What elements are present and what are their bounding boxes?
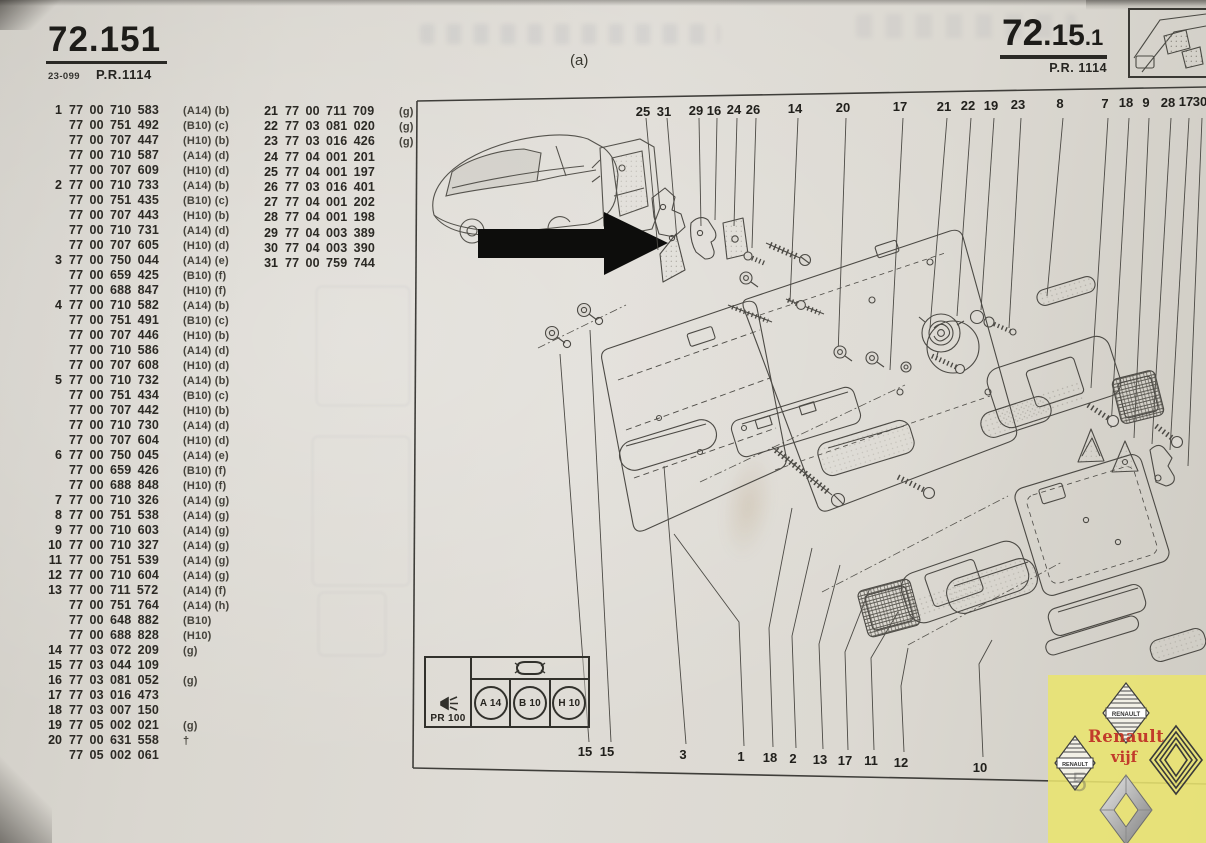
part-number: 77 00 751 492: [69, 118, 179, 132]
pr-code: PR 100: [430, 713, 465, 724]
parts-list-column-2: 21 77 00 711 709 (g) 22 77 03 081 020 (g…: [254, 104, 422, 271]
item-index: 10: [28, 538, 69, 552]
svg-text:RENAULT: RENAULT: [1112, 712, 1141, 718]
item-index: 30: [254, 241, 285, 255]
parts-list-row: 8 77 00 751 538 (A14) (g): [28, 508, 260, 523]
renault-watermark: RENAULT RENAULT: [1048, 675, 1206, 843]
photo-edge: [0, 0, 1206, 6]
callout-number: 19: [984, 98, 998, 113]
trim-code: (B10) (f): [179, 465, 226, 477]
parts-list-row: 77 00 707 609 (H10) (d): [28, 163, 260, 178]
section-number-mid: .15: [1043, 19, 1085, 52]
callout-number: 18: [763, 750, 777, 765]
item-index: 18: [28, 703, 69, 717]
callout-number: 20: [836, 100, 850, 115]
leader-lines-top: [646, 118, 1202, 466]
trim-code: (g): [395, 121, 414, 133]
item-index: 1: [28, 103, 69, 117]
part-number: 77 04 003 390: [285, 241, 395, 255]
item-index: 6: [28, 448, 69, 462]
part-number: 77 00 648 882: [69, 613, 179, 627]
part-number: 77 00 710 327: [69, 538, 179, 552]
item-index: 29: [254, 226, 285, 240]
parts-list-row: 15 77 03 044 109: [28, 658, 260, 673]
parts-list-row: 23 77 03 016 426 (g): [254, 134, 422, 149]
parts-list-row: 77 00 707 447 (H10) (b): [28, 133, 260, 148]
parts-list-row: 21 77 00 711 709 (g): [254, 104, 422, 119]
part-number: 77 00 751 538: [69, 508, 179, 522]
parts-list-row: 77 00 751 492 (B10) (c): [28, 118, 260, 133]
parts-list-row: 25 77 04 001 197: [254, 165, 422, 180]
parts-list-row: 26 77 03 016 401: [254, 180, 422, 195]
item-index: 4: [28, 298, 69, 312]
trim-code: (H10) (b): [179, 330, 229, 342]
parts-list-row: 22 77 03 081 020 (g): [254, 119, 422, 134]
pr-number: P.R.1114: [96, 67, 152, 82]
item-index: 8: [28, 508, 69, 522]
trim-code: (B10) (c): [179, 195, 229, 207]
trim-code: (A14) (b): [179, 375, 229, 387]
callout-number: 17: [838, 753, 852, 768]
trim-code: (A14) (g): [179, 555, 229, 567]
part-number: 77 00 711 709: [285, 104, 395, 118]
photo-corner: [1086, 0, 1206, 10]
callout-number: 12: [894, 755, 908, 770]
parts-list-row: 20 77 00 631 558 †: [28, 733, 260, 748]
trim-code: (H10) (b): [179, 210, 229, 222]
renault-lozenge-3d-icon: [1100, 775, 1152, 843]
section-number-minor: .1: [1085, 25, 1103, 50]
trim-code: (A14) (b): [179, 180, 229, 192]
trim-code: (A14) (g): [179, 570, 229, 582]
parts-list-row: 29 77 04 003 389: [254, 226, 422, 241]
trim-code: (A14) (g): [179, 525, 229, 537]
parts-list-row: 77 00 710 730 (A14) (d): [28, 418, 260, 433]
parts-list-row: 77 00 707 608 (H10) (d): [28, 358, 260, 373]
trim-code: (B10) (c): [179, 390, 229, 402]
item-index: 27: [254, 195, 285, 209]
item-index: 3: [28, 253, 69, 267]
callout-number: 23: [1011, 97, 1025, 112]
legend-pr-cell: PR 100: [426, 658, 472, 726]
trim-code: (g): [179, 675, 198, 687]
item-index: 23: [254, 134, 285, 148]
parts-list-row: 77 00 659 426 (B10) (f): [28, 463, 260, 478]
parts-list-row: 9 77 00 710 603 (A14) (g): [28, 523, 260, 538]
parts-list-row: 28 77 04 001 198: [254, 210, 422, 225]
part-number: 77 00 688 828: [69, 628, 179, 642]
trim-code: (H10) (d): [179, 435, 229, 447]
parts-list-row: 77 00 707 443 (H10) (b): [28, 208, 260, 223]
trim-code: (A14) (e): [179, 450, 229, 462]
trim-code-badge: A 14: [474, 686, 508, 720]
part-number: 77 00 710 586: [69, 343, 179, 357]
section-header-right: 72.15.1 P.R. 1114: [1000, 12, 1107, 75]
horn-icon: [436, 695, 460, 713]
callout-number: 10: [973, 760, 987, 775]
parts-list-row: 77 00 707 604 (H10) (d): [28, 433, 260, 448]
ghost-digit: 5: [1072, 767, 1087, 798]
parts-list-row: 24 77 04 001 201: [254, 150, 422, 165]
callout-number: 1: [737, 749, 744, 764]
callout-number: 9: [1142, 95, 1149, 110]
trim-code-badge: B 10: [513, 686, 547, 720]
part-number: 77 00 710 733: [69, 178, 179, 192]
part-number: 77 00 659 426: [69, 463, 179, 477]
parts-list-column-1: 1 77 00 710 583 (A14) (b) 77 00 751 492 …: [28, 103, 260, 763]
trim-code: (g): [395, 136, 414, 148]
parts-list-row: 77 00 707 446 (H10) (b): [28, 328, 260, 343]
part-number: 77 00 631 558: [69, 733, 179, 747]
parts-list-row: 6 77 00 750 045 (A14) (e): [28, 448, 260, 463]
part-number: 77 00 688 847: [69, 283, 179, 297]
part-number: 77 00 759 744: [285, 256, 395, 270]
callout-number: 16: [707, 103, 721, 118]
parts-list-row: 77 00 710 587 (A14) (d): [28, 148, 260, 163]
part-number: 77 03 081 052: [69, 673, 179, 687]
trim-code: (H10) (d): [179, 240, 229, 252]
part-number: 77 00 659 425: [69, 268, 179, 282]
legend-trim-cell: A 14: [472, 680, 511, 726]
part-number: 77 03 044 109: [69, 658, 179, 672]
part-number: 77 00 707 605: [69, 238, 179, 252]
item-index: 12: [28, 568, 69, 582]
trim-code: (g): [395, 106, 414, 118]
reference-number: 23-099: [48, 71, 80, 82]
part-number: 77 00 688 848: [69, 478, 179, 492]
trim-code: (B10) (c): [179, 120, 229, 132]
parts-list-row: 77 00 751 764 (A14) (h): [28, 598, 260, 613]
trim-code: (A14) (b): [179, 300, 229, 312]
parts-list-row: 77 00 751 434 (B10) (c): [28, 388, 260, 403]
item-index: 16: [28, 673, 69, 687]
door-check-parts: [652, 188, 748, 282]
part-number: 77 00 707 604: [69, 433, 179, 447]
callout-number: 22: [961, 98, 975, 113]
callout-number: 14: [788, 101, 802, 116]
legend-trim-cell: B 10: [511, 680, 550, 726]
callout-number: 25: [636, 104, 650, 119]
item-index: 24: [254, 150, 285, 164]
parts-list-row: 27 77 04 001 202: [254, 195, 422, 210]
inner-door-frame-panel: [743, 230, 1017, 511]
part-number: 77 00 710 583: [69, 103, 179, 117]
part-number: 77 00 707 446: [69, 328, 179, 342]
part-number: 77 00 707 442: [69, 403, 179, 417]
callout-number: 8: [1056, 96, 1063, 111]
callout-number: 2: [789, 751, 796, 766]
thumbnail-sketch-icon: [1130, 10, 1206, 76]
callout-number: 18: [1119, 95, 1133, 110]
legend-shape-cell: [472, 658, 588, 680]
parts-list-row: 4 77 00 710 582 (A14) (b): [28, 298, 260, 313]
part-number: 77 04 001 197: [285, 165, 395, 179]
parts-list-row: 77 00 659 425 (B10) (f): [28, 268, 260, 283]
callout-number: 30: [1193, 94, 1206, 109]
renault-vijf-text: Renault vijf: [1088, 727, 1160, 766]
door-trim-panel-left: [602, 301, 787, 531]
photo-corner: [0, 0, 70, 30]
parts-list-row: 77 00 688 847 (H10) (f): [28, 283, 260, 298]
trim-code: (A14) (g): [179, 495, 229, 507]
item-index: 22: [254, 119, 285, 133]
parts-list-row: 1 77 00 710 583 (A14) (b): [28, 103, 260, 118]
callout-number: 15: [600, 744, 614, 759]
trim-code: (H10) (b): [179, 135, 229, 147]
part-number: 77 00 710 732: [69, 373, 179, 387]
parts-list-row: 77 00 707 605 (H10) (d): [28, 238, 260, 253]
part-number: 77 03 007 150: [69, 703, 179, 717]
part-number: 77 04 001 202: [285, 195, 395, 209]
trim-code: (A14) (e): [179, 255, 229, 267]
parts-list-row: 31 77 00 759 744: [254, 256, 422, 271]
part-number: 77 00 710 603: [69, 523, 179, 537]
trim-code: (H10) (d): [179, 165, 229, 177]
part-number: 77 05 002 061: [69, 748, 179, 762]
part-number: 77 00 750 045: [69, 448, 179, 462]
trim-code: (g): [179, 645, 198, 657]
part-number: 77 03 072 209: [69, 643, 179, 657]
trim-code: (A14) (g): [179, 540, 229, 552]
parts-list-row: 77 00 751 491 (B10) (c): [28, 313, 260, 328]
part-number: 77 04 001 198: [285, 210, 395, 224]
part-number: 77 03 081 020: [285, 119, 395, 133]
trim-code: (B10) (f): [179, 270, 226, 282]
photo-corner: [0, 743, 52, 843]
callout-number: 28: [1161, 95, 1175, 110]
parts-list-row: 11 77 00 751 539 (A14) (g): [28, 553, 260, 568]
part-number: 77 00 707 609: [69, 163, 179, 177]
part-number: 77 00 751 434: [69, 388, 179, 402]
trim-code: (H10) (f): [179, 480, 226, 492]
parts-list-row: 12 77 00 710 604 (A14) (g): [28, 568, 260, 583]
parts-list-row: 77 00 710 731 (A14) (d): [28, 223, 260, 238]
part-number: 77 05 002 021: [69, 718, 179, 732]
part-number: 77 00 707 443: [69, 208, 179, 222]
catalog-page-scan: 72.151 23-099 P.R.1114 72.15.1 P.R. 1114…: [0, 0, 1206, 843]
door-trim-thumbnail: [1128, 8, 1206, 78]
trim-code-badge: H 10: [552, 686, 586, 720]
callout-number: 11: [864, 753, 878, 768]
trim-shape-icon: [512, 659, 548, 677]
part-number: 77 00 751 491: [69, 313, 179, 327]
part-number: 77 00 710 604: [69, 568, 179, 582]
part-number: 77 03 016 426: [285, 134, 395, 148]
part-number: 77 00 750 044: [69, 253, 179, 267]
parts-list-row: 7 77 00 710 326 (A14) (g): [28, 493, 260, 508]
parts-list-row: 17 77 03 016 473: [28, 688, 260, 703]
part-number: 77 03 016 401: [285, 180, 395, 194]
callout-number: 24: [727, 102, 741, 117]
trim-code: (A14) (d): [179, 225, 229, 237]
item-index: 19: [28, 718, 69, 732]
trim-code: (A14) (g): [179, 510, 229, 522]
part-number: 77 04 003 389: [285, 226, 395, 240]
legend-trim-cell: H 10: [551, 680, 588, 726]
parts-list-row: 77 00 688 848 (H10) (f): [28, 478, 260, 493]
item-index: 14: [28, 643, 69, 657]
item-index: 31: [254, 256, 285, 270]
parts-list-row: 3 77 00 750 044 (A14) (e): [28, 253, 260, 268]
figure-label: (a): [570, 52, 588, 69]
parts-list-row: 5 77 00 710 732 (A14) (b): [28, 373, 260, 388]
item-index: 7: [28, 493, 69, 507]
callout-number: 29: [689, 103, 703, 118]
door-pull-assembly-right: [978, 275, 1183, 448]
section-number-major: 72: [1002, 12, 1043, 53]
part-number: 77 00 707 447: [69, 133, 179, 147]
trim-code: (B10): [179, 615, 212, 627]
part-number: 77 00 707 608: [69, 358, 179, 372]
parts-list-row: 14 77 03 072 209 (g): [28, 643, 260, 658]
parts-list-row: 77 00 648 882 (B10): [28, 613, 260, 628]
part-number: 77 04 001 201: [285, 150, 395, 164]
item-index: 17: [28, 688, 69, 702]
trim-code: (H10) (d): [179, 360, 229, 372]
callout-number: 7: [1101, 96, 1108, 111]
part-number: 77 00 710 587: [69, 148, 179, 162]
part-number: 77 00 710 730: [69, 418, 179, 432]
parts-list-row: 2 77 00 710 733 (A14) (b): [28, 178, 260, 193]
trim-code: (A14) (h): [179, 600, 229, 612]
trim-code: (H10): [179, 630, 212, 642]
trim-code: (A14) (b): [179, 105, 229, 117]
part-number: 77 00 711 572: [69, 583, 179, 597]
callout-number: 13: [813, 752, 827, 767]
item-index: 28: [254, 210, 285, 224]
part-number: 77 00 751 539: [69, 553, 179, 567]
parts-list-row: 77 05 002 061: [28, 748, 260, 763]
trim-code: (A14) (d): [179, 420, 229, 432]
trim-code: (B10) (c): [179, 315, 229, 327]
callout-number: 26: [746, 102, 760, 117]
item-index: 13: [28, 583, 69, 597]
parts-list-row: 30 77 04 003 390: [254, 241, 422, 256]
part-number: 77 00 751 435: [69, 193, 179, 207]
parts-list-row: 77 00 710 586 (A14) (d): [28, 343, 260, 358]
callout-number: 17: [893, 99, 907, 114]
callout-number: 21: [937, 99, 951, 114]
trim-code: (g): [179, 720, 198, 732]
callout-number: 31: [657, 104, 671, 119]
parts-list-row: 77 00 707 442 (H10) (b): [28, 403, 260, 418]
part-number: 77 03 016 473: [69, 688, 179, 702]
callout-number: 15: [578, 744, 592, 759]
corner-trim-triangles: [1078, 429, 1174, 486]
item-index: 15: [28, 658, 69, 672]
trim-legend-box: PR 100 A 14 B 10 H 10: [424, 656, 590, 728]
trim-code: †: [179, 735, 189, 747]
parts-list-row: 18 77 03 007 150: [28, 703, 260, 718]
part-number: 77 00 710 731: [69, 223, 179, 237]
part-number: 77 00 751 764: [69, 598, 179, 612]
item-index: 11: [28, 553, 69, 567]
pr-number-right: P.R. 1114: [1000, 61, 1107, 75]
parts-list-row: 77 00 688 828 (H10): [28, 628, 260, 643]
parts-list-row: 19 77 05 002 021 (g): [28, 718, 260, 733]
item-index: 25: [254, 165, 285, 179]
parts-list-row: 77 00 751 435 (B10) (c): [28, 193, 260, 208]
trim-code: (H10) (b): [179, 405, 229, 417]
trim-code: (A14) (d): [179, 345, 229, 357]
item-index: 26: [254, 180, 285, 194]
item-index: 9: [28, 523, 69, 537]
parts-list-row: 16 77 03 081 052 (g): [28, 673, 260, 688]
part-number: 77 00 710 582: [69, 298, 179, 312]
item-index: 2: [28, 178, 69, 192]
part-number: 77 00 710 326: [69, 493, 179, 507]
item-index: 5: [28, 373, 69, 387]
trim-code: (A14) (f): [179, 585, 226, 597]
exploded-parts: [546, 188, 1206, 664]
parts-list-row: 10 77 00 710 327 (A14) (g): [28, 538, 260, 553]
callout-number: 17: [1179, 94, 1193, 109]
trim-code: (H10) (f): [179, 285, 226, 297]
item-index: 21: [254, 104, 285, 118]
callout-number: 3: [679, 747, 686, 762]
pointer-arrow: [478, 212, 668, 275]
parts-list-row: 13 77 00 711 572 (A14) (f): [28, 583, 260, 598]
trim-code: (A14) (d): [179, 150, 229, 162]
legend-trim-cells: A 14 B 10 H 10: [472, 680, 588, 726]
